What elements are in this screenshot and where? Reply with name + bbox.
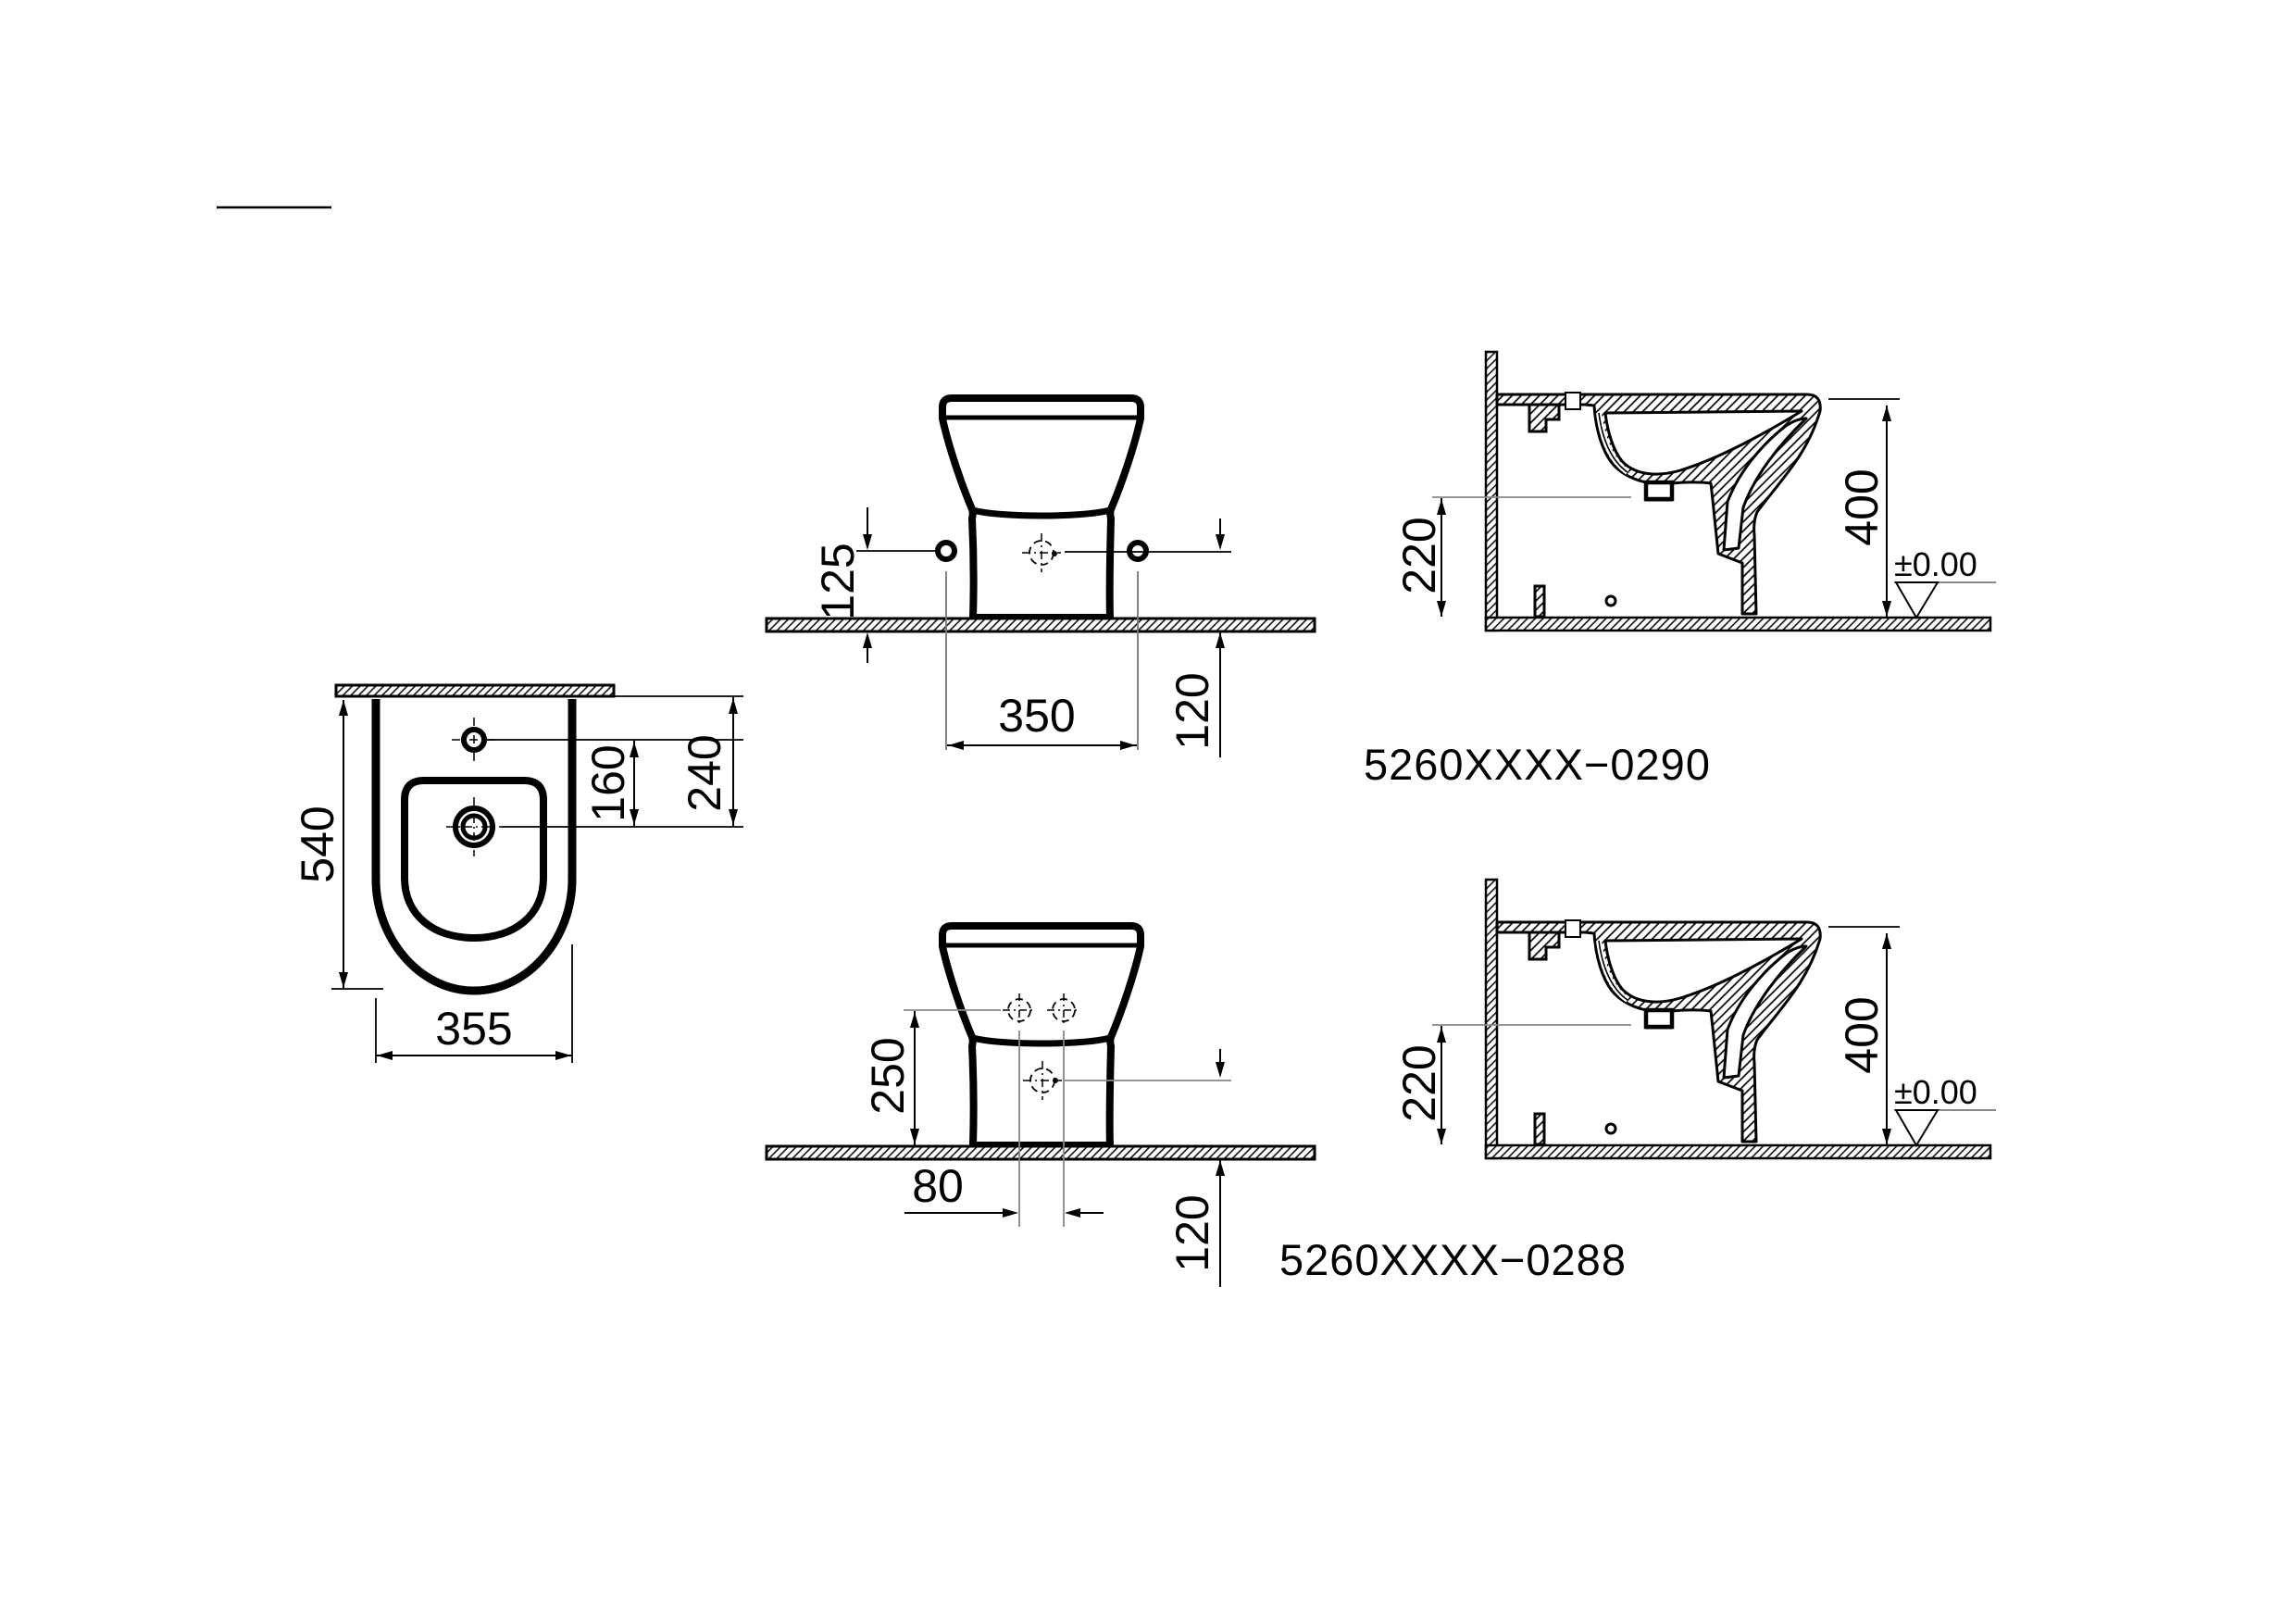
rim-slot (1565, 393, 1580, 409)
side-hole-right (1129, 543, 1146, 559)
technical-drawing-sheet: 540 355 160 240 (0, 0, 2295, 1624)
arrow-up-icon (910, 1012, 919, 1028)
arrow-right-icon (1120, 741, 1136, 750)
floor-level-label: ±0.00 (1894, 545, 1977, 583)
dim-540-label: 540 (292, 806, 343, 882)
dim-160: 160 (582, 741, 639, 826)
arrow-down-icon (339, 972, 348, 988)
dim-80-label: 80 (912, 1160, 964, 1212)
dim-120-0288: 120 (1166, 1049, 1225, 1287)
dim-120-label: 120 (1166, 1194, 1218, 1271)
arrow-down-icon (910, 1129, 919, 1144)
section-wall-hatch (1486, 352, 1497, 631)
dim-240-label: 240 (679, 734, 730, 811)
bidet-front-outline (942, 398, 1141, 618)
product-code-0290: 5260XXXX−0290 (1364, 740, 1711, 789)
plan-wall-hatch (336, 685, 614, 696)
dim-250: 250 (862, 1011, 919, 1145)
product-code-0288: 5260XXXX−0288 (1279, 1235, 1627, 1284)
arrow-down-icon (1216, 1062, 1225, 1078)
arrow-up-icon (1216, 632, 1225, 648)
dim-220: 220 (1393, 497, 1631, 617)
fixing-hole (1606, 596, 1615, 606)
arrow-up-icon (729, 698, 738, 714)
arrow-down-icon (863, 534, 872, 550)
drain-outlet-box (1646, 482, 1672, 499)
dim-350: 350 (947, 690, 1137, 750)
section-view-0288 (1393, 880, 1996, 1158)
arrow-up-icon (1882, 406, 1891, 421)
dim-355-label: 355 (435, 1003, 512, 1055)
dim-355: 355 (376, 1003, 572, 1060)
dim-160-label: 160 (582, 744, 634, 821)
side-hole-left (938, 543, 954, 559)
arrow-left-icon (948, 741, 964, 750)
arrow-down-icon (1216, 534, 1225, 550)
arrow-up-icon (863, 632, 872, 648)
dim-120-label: 120 (1166, 672, 1218, 749)
arrow-left-icon (377, 1051, 393, 1060)
dim-120-0290: 120 (1166, 518, 1225, 757)
dim-125: 125 (812, 507, 872, 663)
dim-540: 540 (292, 700, 348, 988)
level-triangle-icon (1896, 582, 1938, 618)
arrow-right-icon (555, 1051, 571, 1060)
floor-stub-hatch (1535, 586, 1544, 617)
dim-400: 400 (1828, 399, 1900, 617)
arrow-left-icon (1065, 1208, 1080, 1218)
dim-125-label: 125 (812, 543, 864, 619)
arrow-up-icon (1216, 1160, 1225, 1176)
floor-level-symbol: ±0.00 (1894, 545, 1996, 618)
dim-220-label: 220 (1393, 517, 1445, 593)
arrow-down-icon (1882, 601, 1891, 617)
arrow-up-icon (339, 700, 348, 716)
section-floor-hatch (1486, 618, 1990, 631)
drawing-svg: 540 355 160 240 (0, 0, 2295, 1624)
front-view-body-0288 (767, 926, 1315, 1159)
dim-80: 80 (904, 1160, 1104, 1218)
dim-250-label: 250 (862, 1037, 914, 1114)
dim-350-label: 350 (998, 690, 1075, 742)
arrow-up-icon (1437, 499, 1446, 515)
arrow-down-icon (1437, 601, 1446, 617)
wall-fixing-block-hatch (1529, 405, 1559, 431)
plan-view: 540 355 160 240 (292, 685, 743, 1063)
dim-400-label: 400 (1836, 468, 1888, 545)
section-view: 220 400 ±0.00 (1393, 352, 1996, 631)
arrow-right-icon (1003, 1208, 1018, 1218)
dim-240: 240 (679, 697, 738, 826)
